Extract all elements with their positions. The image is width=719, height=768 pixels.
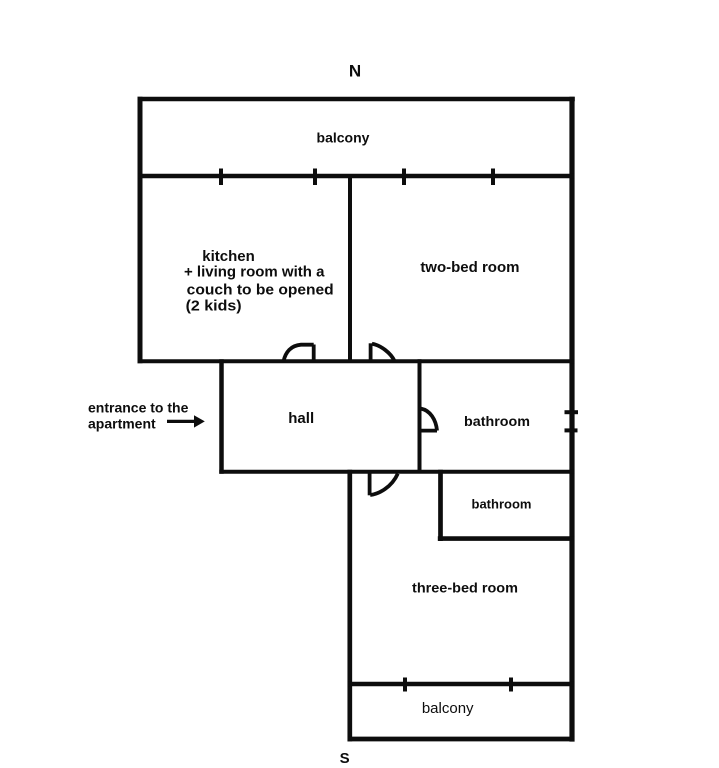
svg-text:balcony: balcony — [317, 129, 370, 145]
svg-text:three-bed room: three-bed room — [412, 580, 518, 596]
svg-text:couch to be opened: couch to be opened — [187, 281, 334, 298]
svg-text:hall: hall — [288, 410, 314, 427]
svg-text:apartment: apartment — [88, 415, 156, 431]
svg-text:bathroom: bathroom — [472, 497, 532, 512]
svg-text:bathroom: bathroom — [464, 413, 530, 429]
svg-text:N: N — [349, 62, 361, 81]
svg-text:balcony: balcony — [422, 700, 474, 717]
svg-text:S: S — [340, 750, 350, 767]
svg-text:+ living room with a: + living room with a — [184, 264, 325, 281]
svg-text:entrance to the: entrance to the — [88, 399, 189, 415]
svg-text:(2 kids): (2 kids) — [186, 298, 242, 315]
svg-text:two-bed room: two-bed room — [420, 259, 519, 276]
